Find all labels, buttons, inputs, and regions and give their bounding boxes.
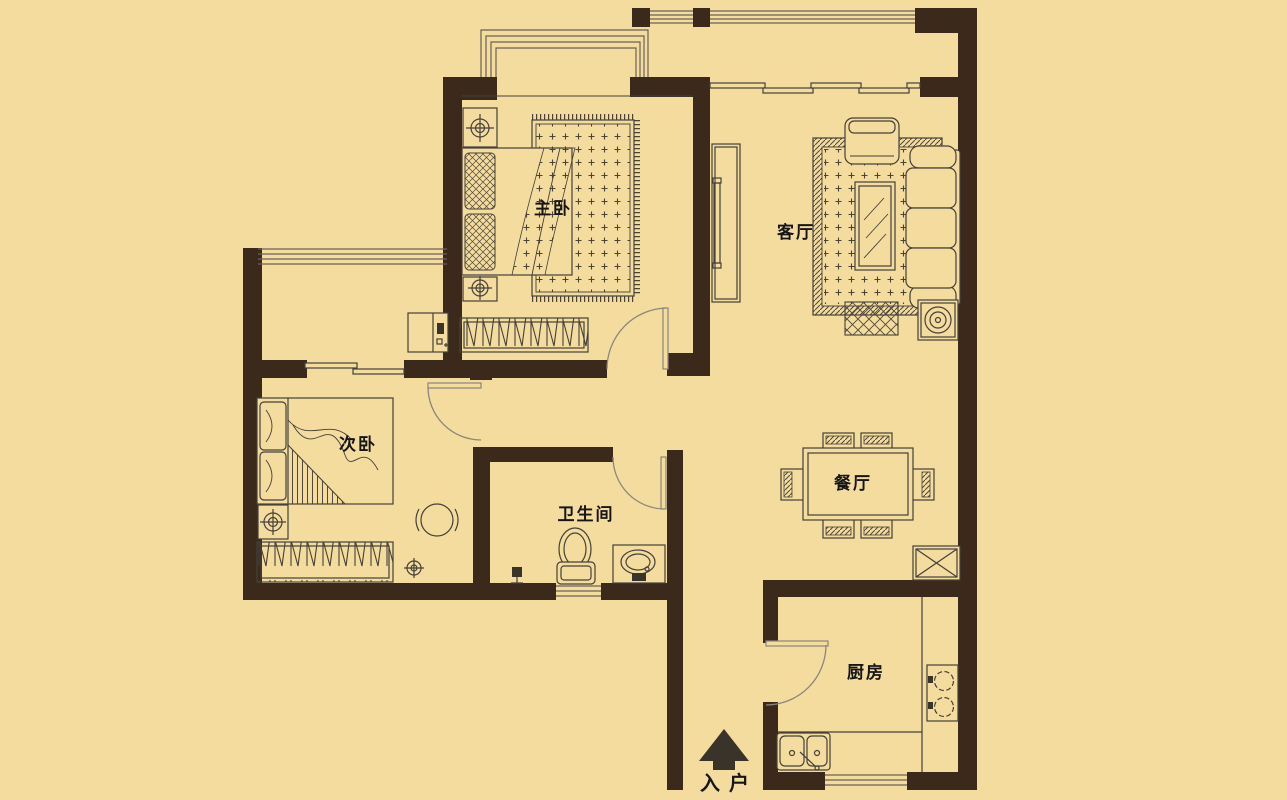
master-bedroom-furniture: [460, 108, 637, 352]
sofa: [906, 146, 960, 308]
wall-master-right: [693, 97, 710, 376]
toilet: [557, 528, 595, 584]
armchair: [845, 118, 899, 164]
room-label-dining-room: 餐厅: [834, 473, 872, 493]
wall-kitchen-left-bottom: [763, 702, 778, 772]
floor-lamp-icon: [404, 558, 424, 578]
utility-window: [258, 249, 447, 264]
second-wardrobe: [257, 542, 393, 582]
wall-bottom-left: [243, 583, 678, 600]
wall-utility-divider-left: [257, 360, 307, 378]
floor-drain: [511, 567, 523, 583]
balcony-window-left: [650, 11, 693, 23]
bathroom-door: [613, 457, 666, 509]
dining-furniture: [781, 433, 960, 580]
kitchen-furniture: [777, 597, 958, 772]
second-bedroom-door: [428, 383, 481, 440]
kitchen-sink: [777, 733, 830, 770]
wall-bedroom2-door-jamb: [470, 370, 492, 380]
stove: [927, 665, 958, 721]
floor-plan: 主卧 客厅 次卧 卫生间 餐厅 厨房 入户: [0, 0, 1287, 800]
bathroom-window: [556, 583, 601, 600]
living-room-furniture: [712, 118, 960, 340]
room-label-kitchen: 厨房: [847, 662, 885, 682]
wall-bathroom-top: [473, 447, 613, 462]
master-pillow-2: [465, 214, 495, 270]
side-table: [918, 300, 958, 340]
bathroom-sink: [613, 545, 665, 583]
wall-living-divider-right: [920, 77, 965, 97]
desk-chair: [416, 504, 458, 536]
kitchen-window: [825, 772, 907, 790]
wall-bedroom2-bathroom-shared: [473, 447, 490, 583]
coffee-table: [855, 182, 895, 270]
arrow-up-icon: [699, 729, 749, 770]
utility-balcony: [408, 313, 448, 352]
wall-balcony-pillar-left: [632, 8, 650, 27]
wall-dining-kitchen: [763, 580, 977, 597]
balcony-sliding-door: [710, 83, 920, 93]
wall-balcony-pillar-mid: [693, 8, 710, 27]
wall-kitchen-bottom-corner: [907, 772, 977, 790]
washing-machine: [408, 313, 448, 352]
balcony-window-right: [710, 11, 915, 23]
shaft: [913, 546, 960, 580]
entrance: [699, 729, 749, 770]
wall-utility-divider-right: [404, 360, 462, 378]
sink-tap: [632, 573, 646, 581]
room-label-bathroom: 卫生间: [558, 504, 615, 524]
master-bedroom-door: [607, 308, 668, 369]
entrance-label: 入户: [700, 771, 758, 795]
utility-sliding-door: [305, 363, 404, 374]
second-bedroom-furniture: [257, 398, 458, 582]
bathroom-furniture: [511, 528, 665, 584]
tv-cabinet: [712, 144, 740, 302]
wall-master-bottom-corner: [667, 353, 710, 376]
kitchen-door: [766, 641, 828, 705]
master-pillow-1: [465, 153, 495, 209]
wall-living-divider-left: [630, 77, 710, 97]
room-label-second-bedroom: 次卧: [339, 434, 377, 454]
master-wardrobe: [460, 318, 588, 352]
second-pillow-2: [260, 452, 286, 500]
wall-right-outer: [958, 25, 977, 790]
room-label-living-room: 客厅: [776, 222, 815, 242]
wall-kitchen-left-top: [763, 597, 778, 643]
second-pillow-1: [260, 402, 286, 450]
doormat: [845, 302, 898, 335]
room-label-master-bedroom: 主卧: [534, 198, 572, 218]
wall-corridor-left: [667, 450, 683, 790]
